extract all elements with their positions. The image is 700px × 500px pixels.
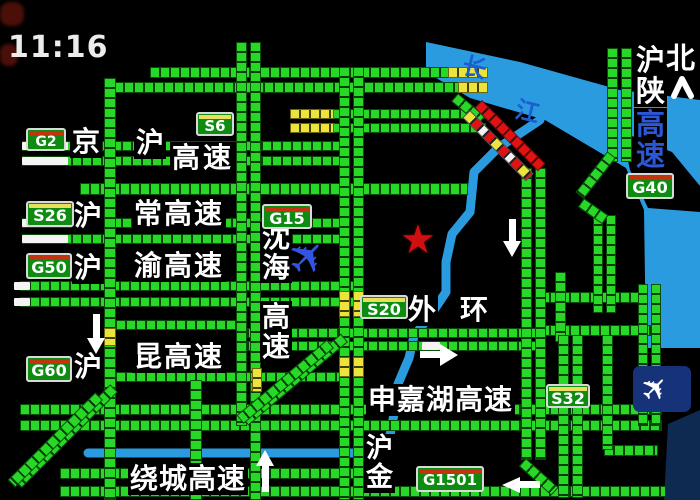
road-segment [20, 297, 356, 307]
road-segment [521, 168, 532, 460]
label-huan: 环 [458, 294, 490, 326]
badge-g2: G2 [26, 128, 66, 151]
label-raocheng: 绕城高速 [128, 463, 248, 495]
label-north: 北 [664, 42, 697, 75]
label-yu-gaosu: 渝高速 [132, 250, 226, 282]
road-segment [236, 42, 247, 426]
badge-label: G1501 [418, 473, 482, 489]
road-marker [14, 282, 30, 290]
traffic-map-screen: G2 S6 S26 G50 G15 S20 G60 G40 S32 G1501 … [0, 0, 700, 500]
road-segment [150, 67, 488, 78]
badge-label: S6 [198, 119, 232, 135]
badge-s26: S26 [26, 201, 74, 227]
badge-g40: G40 [626, 173, 674, 199]
label-wai: 外 [406, 294, 438, 326]
label-jing: 京 [70, 126, 102, 158]
badge-s32: S32 [546, 384, 590, 408]
road-segment [104, 78, 116, 500]
road-segment [535, 168, 546, 460]
badge-label: G2 [28, 135, 64, 150]
road-segment [607, 48, 618, 162]
road-segment-slow [339, 357, 350, 377]
label-hushan-gaosu: 高 速 [634, 108, 667, 171]
badge-g50: G50 [26, 253, 72, 279]
road-segment [339, 67, 350, 500]
badge-label: G40 [628, 180, 672, 197]
label-hu: 沪 [72, 252, 104, 284]
badge-label: S32 [548, 391, 588, 408]
road-segment [555, 272, 566, 342]
badge-s6: S6 [196, 112, 234, 136]
label-hu: 沪 [72, 351, 104, 383]
road-marker [422, 342, 440, 350]
badge-label: S26 [28, 208, 72, 225]
badge-g1501: G1501 [416, 466, 484, 492]
clock-display: 11:16 [8, 30, 109, 65]
label-chang-gaosu: 常高速 [132, 198, 226, 230]
road-segment [575, 151, 616, 199]
badge-label: G50 [28, 260, 70, 277]
road-segment [558, 335, 569, 498]
badge-g60: G60 [26, 356, 72, 382]
label-shenjiahu: 申嘉湖高速 [366, 384, 515, 416]
road-segment [116, 320, 242, 330]
road-network [0, 0, 700, 500]
road-segment [602, 335, 613, 450]
road-segment-slow [290, 123, 334, 133]
label-hu: 沪 [72, 200, 104, 232]
road-segment-slow [290, 109, 334, 119]
road-segment-slow [339, 291, 350, 317]
road-segment [606, 215, 616, 313]
road-marker [22, 157, 68, 165]
label-kun-gaosu: 昆高速 [132, 341, 226, 373]
badge-g15: G15 [262, 204, 312, 229]
label-gaosu: 高速 [170, 142, 236, 174]
label-shenhai-gaosu: 高 速 [260, 301, 292, 362]
label-hu: 沪 [134, 127, 166, 159]
label-hujin: 沪 金 [364, 434, 395, 493]
road-marker [22, 235, 68, 243]
road-segment-slow [104, 328, 116, 346]
road-segment [116, 372, 350, 382]
badge-label: S20 [362, 302, 406, 319]
road-segment [572, 335, 583, 498]
road-segment [104, 82, 488, 93]
road-segment [80, 183, 468, 195]
road-segment [353, 67, 364, 500]
road-segment [621, 48, 632, 162]
badge-label: G60 [28, 363, 70, 380]
road-marker [14, 298, 30, 306]
road-segment-slow [353, 357, 364, 377]
city-center-star-icon: ★ [400, 220, 436, 260]
badge-s20: S20 [360, 295, 408, 319]
road-segment-slow [458, 82, 488, 93]
road-segment-slow [252, 368, 262, 392]
road-segment [593, 215, 603, 313]
badge-label: G15 [264, 211, 310, 228]
label-hushan: 沪 陕 [634, 44, 667, 107]
